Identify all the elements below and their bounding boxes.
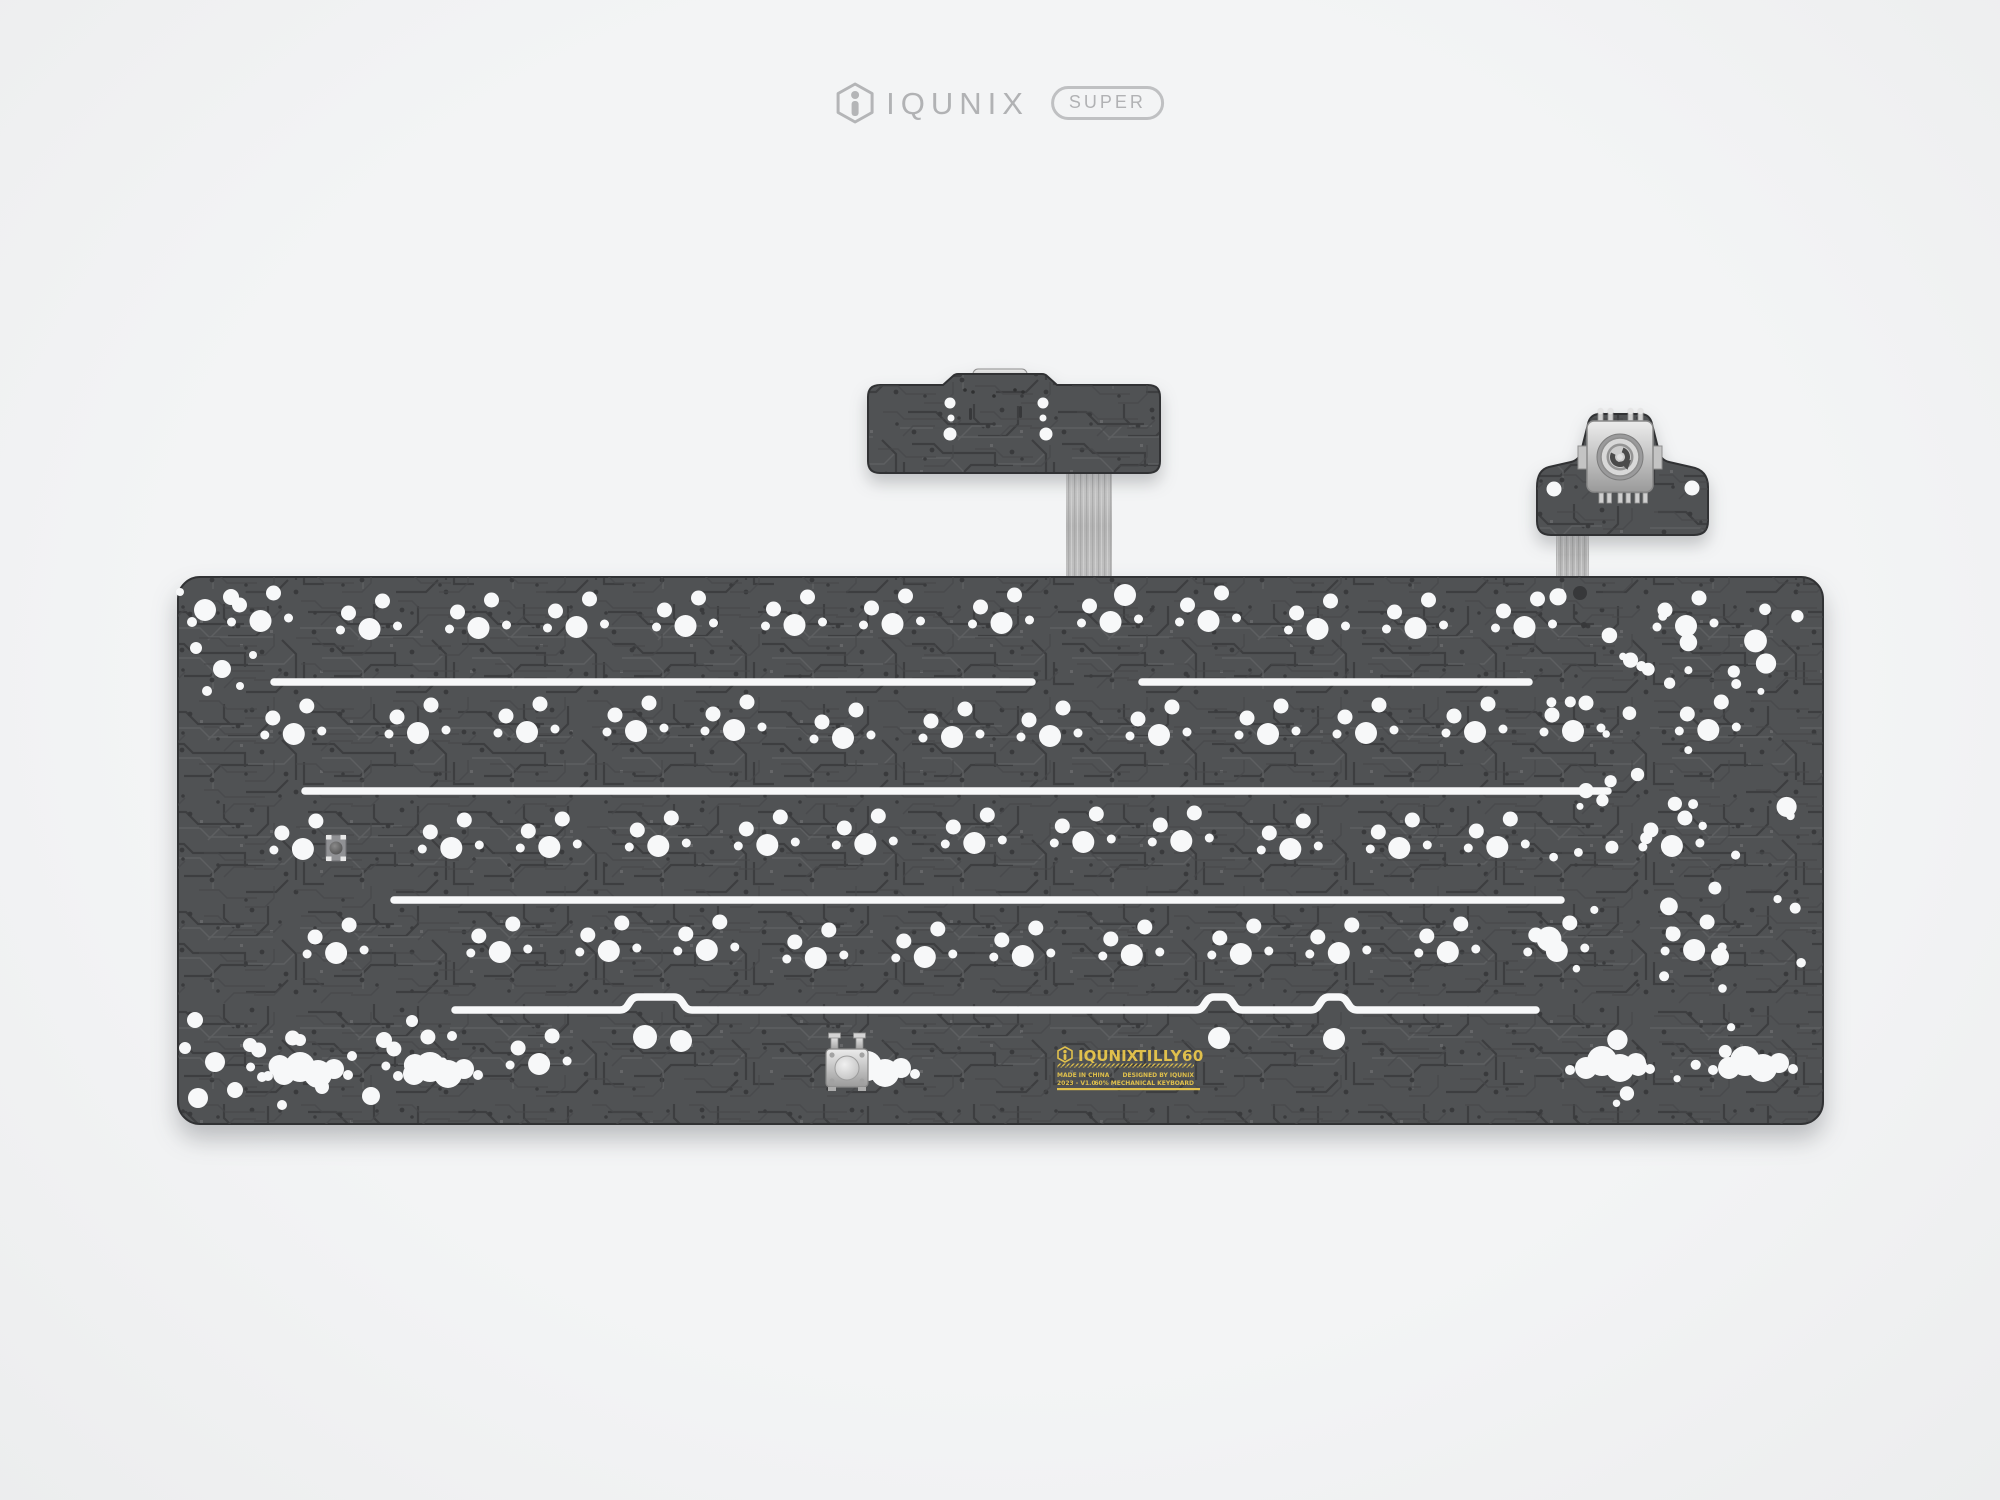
knob-module — [1537, 408, 1708, 535]
main-pcb: IQUNIX TILLY60 MADE IN CHINA 2023 - V1.0… — [176, 577, 1823, 1124]
label-made-in: MADE IN CHINA — [1057, 1072, 1110, 1079]
smd-led-component — [326, 835, 346, 861]
pcb-product-render: IQUNIX TILLY60 MADE IN CHINA 2023 - V1.0… — [0, 0, 2000, 1500]
rotary-encoder — [1578, 408, 1662, 503]
product-stage: IQUNIX SUPER — [0, 0, 2000, 1500]
label-hatch-divider — [1057, 1064, 1194, 1068]
label-version: 2023 - V1.0 — [1057, 1080, 1096, 1087]
label-designed-by: DESIGNED BY IQUNIX — [1122, 1072, 1194, 1079]
label-board-type: 60% MECHANICAL KEYBOARD — [1094, 1080, 1194, 1087]
usb-daughterboard — [868, 369, 1160, 473]
label-brand: IQUNIX — [1078, 1047, 1139, 1065]
usb-ribbon-cable — [1066, 462, 1112, 579]
ribbon-cables — [1066, 462, 1589, 579]
label-model: TILLY60 — [1136, 1047, 1204, 1065]
label-underline — [1057, 1088, 1200, 1090]
